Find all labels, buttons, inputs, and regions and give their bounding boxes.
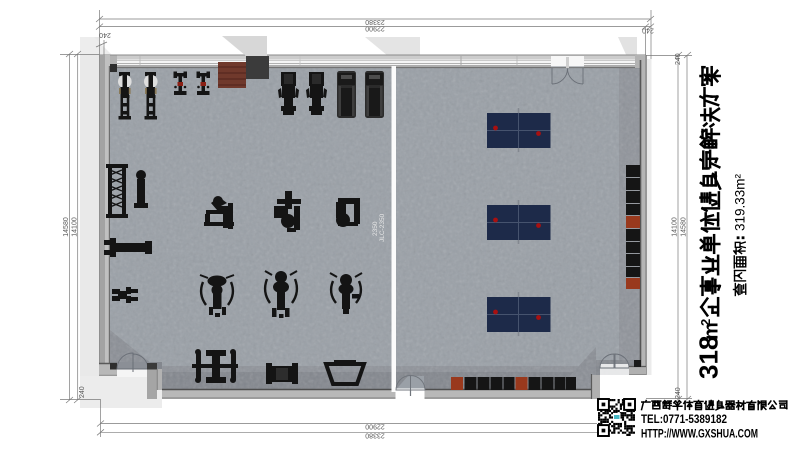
svg-text:JLC-2350: JLC-2350 (379, 213, 386, 242)
svg-text:TEL:0771-5389182: TEL:0771-5389182 (641, 412, 727, 426)
svg-text:2: 2 (698, 319, 713, 326)
svg-text:240: 240 (675, 387, 682, 399)
svg-text:14100: 14100 (672, 217, 679, 237)
svg-text:22900: 22900 (365, 423, 385, 430)
svg-text:23380: 23380 (365, 18, 385, 25)
svg-text:240: 240 (675, 53, 682, 65)
svg-text:HTTP://WWW.GXSHUA.COM: HTTP://WWW.GXSHUA.COM (641, 427, 758, 441)
svg-text:14100: 14100 (71, 217, 78, 237)
svg-text:240: 240 (642, 27, 654, 34)
svg-text:240: 240 (79, 386, 86, 398)
svg-text:14580: 14580 (681, 217, 688, 237)
svg-text:318: 318 (694, 336, 724, 379)
svg-text:319.33m²: 319.33m² (733, 173, 748, 231)
svg-text:240: 240 (99, 31, 111, 38)
svg-text:22900: 22900 (365, 25, 385, 32)
svg-text:23380: 23380 (365, 432, 385, 439)
svg-text:2350: 2350 (372, 221, 379, 236)
svg-text:14580: 14580 (63, 217, 70, 237)
